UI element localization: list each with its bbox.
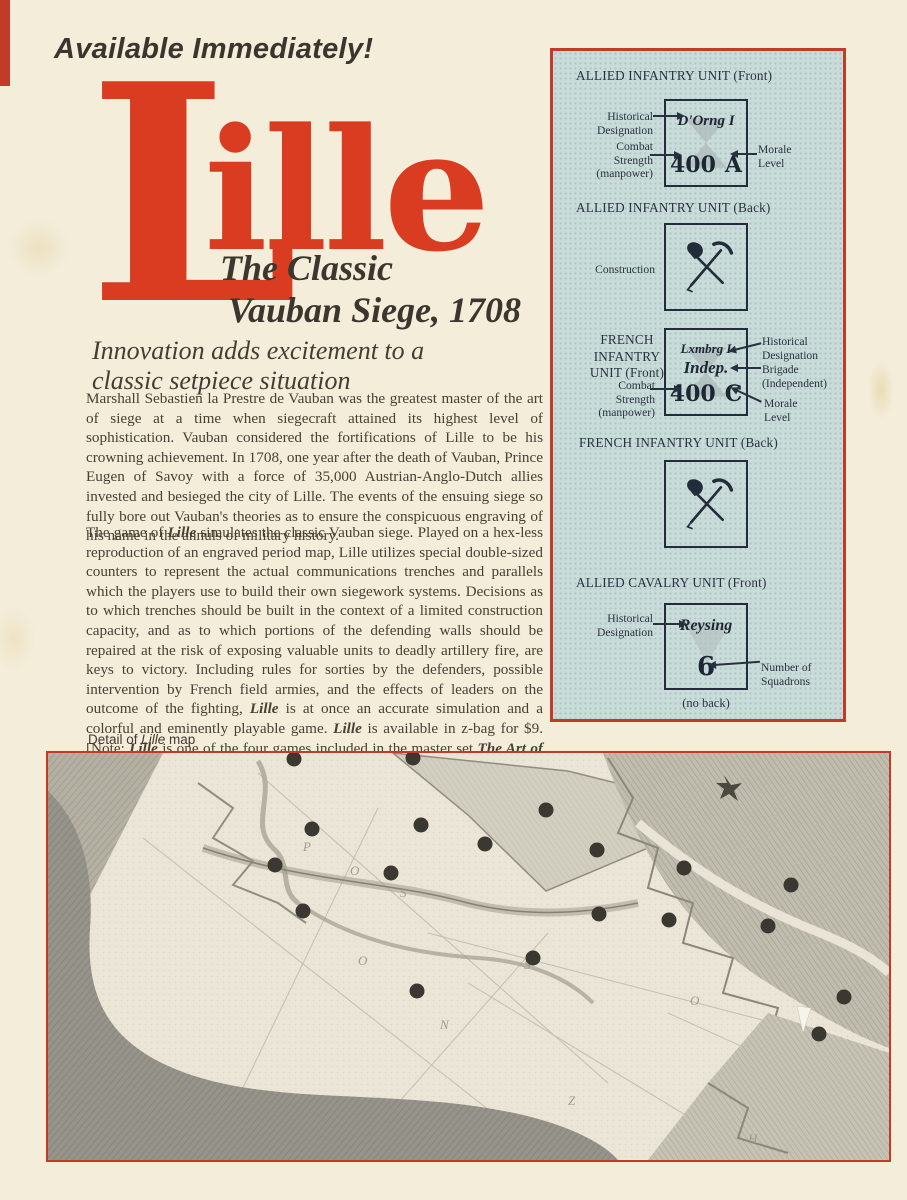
label-brigade: Brigade (Independent) <box>762 363 827 390</box>
siege-unit-dot <box>268 858 283 873</box>
arrow-historical-designation <box>653 115 679 117</box>
siege-unit-dot <box>305 822 320 837</box>
siege-unit-dot <box>761 919 776 934</box>
siege-unit-dot <box>812 1027 827 1042</box>
label-construction: Construction <box>561 263 655 277</box>
arrow-morale-level <box>736 153 757 155</box>
siege-unit-dot <box>539 803 554 818</box>
counter-french-infantry-front: Lxmbrg I Indep. 400C <box>664 328 748 416</box>
label-morale-level: Morale Level <box>758 143 791 170</box>
logo-subtitle-line1: The Classic <box>220 248 521 290</box>
siege-unit-dot <box>677 861 692 876</box>
label-combat-strength: Combat Strength (manpower) <box>557 140 653 181</box>
counter-diagram-sidebar: ALLIED INFANTRY UNIT (Front) D'Orng I 40… <box>550 48 846 722</box>
crossed-shovel-pick-icon <box>678 239 734 295</box>
section-heading-french-infantry-back: FRENCH INFANTRY UNIT (Back) <box>579 435 778 451</box>
intro-heading: Innovation adds excitement to a classic … <box>92 336 424 397</box>
map-letter: P <box>302 839 311 854</box>
crossed-shovel-pick-icon <box>678 476 734 532</box>
paper-stain <box>8 218 70 278</box>
siege-unit-dot <box>784 878 799 893</box>
label-number-of-squadrons: Number of Squadrons <box>761 661 812 688</box>
no-back-note: (no back) <box>664 696 748 711</box>
map-letter: H <box>747 1131 758 1146</box>
logo-subtitle-line2: Vauban Siege, 1708 <box>228 290 521 332</box>
arrow-historical-designation <box>653 623 681 625</box>
label-historical-designation: Historical Designation <box>557 110 653 137</box>
paper-stain <box>0 606 36 672</box>
counter-allied-cavalry-front: Reysing 6 <box>664 603 748 690</box>
map-letter: O <box>690 993 700 1008</box>
paper-stain <box>868 360 894 420</box>
siege-unit-dot <box>478 837 493 852</box>
counter-designation: Reysing <box>666 617 746 635</box>
section-heading-allied-infantry-front: ALLIED INFANTRY UNIT (Front) <box>576 68 772 84</box>
siege-map-detail: POSONSZOH <box>46 751 891 1162</box>
arrow-combat-strength <box>650 154 676 156</box>
label-historical-designation: Historical Designation <box>557 612 653 639</box>
page-edge-red-strip <box>0 0 10 86</box>
section-heading-allied-cavalry-front: ALLIED CAVALRY UNIT (Front) <box>576 575 767 591</box>
siege-unit-dot <box>526 951 541 966</box>
map-letter: S <box>400 885 407 900</box>
counter-french-infantry-back <box>664 460 748 548</box>
magazine-ad-page: Available Immediately! L ille The Classi… <box>0 0 907 1200</box>
siege-unit-dot <box>662 913 677 928</box>
label-historical-designation: Historical Designation <box>762 335 818 362</box>
siege-map-svg: POSONSZOH <box>48 753 889 1160</box>
siege-unit-dot <box>296 904 311 919</box>
logo-subtitle: The Classic Vauban Siege, 1708 <box>220 248 521 332</box>
siege-unit-dot <box>414 818 429 833</box>
arrow-brigade <box>736 367 761 369</box>
section-heading-french-infantry-front: FRENCH INFANTRY UNIT (Front) <box>579 332 675 382</box>
siege-unit-dot <box>592 907 607 922</box>
map-caption: Detail of Lille map <box>88 732 195 747</box>
siege-unit-dot <box>384 866 399 881</box>
map-letter: O <box>350 863 360 878</box>
section-heading-allied-infantry-back: ALLIED INFANTRY UNIT (Back) <box>576 200 771 216</box>
map-letter: N <box>439 1017 450 1032</box>
counter-allied-infantry-back <box>664 223 748 311</box>
siege-unit-dot <box>590 843 605 858</box>
map-letter: Z <box>568 1093 576 1108</box>
siege-unit-dot <box>837 990 852 1005</box>
map-letter: O <box>358 953 368 968</box>
arrow-combat-strength <box>650 388 676 390</box>
siege-unit-dot <box>410 984 425 999</box>
label-morale-level: Morale Level <box>764 397 797 424</box>
squadron-count-value: 6 <box>666 652 746 682</box>
label-combat-strength: Combat Strength (manpower) <box>559 379 655 420</box>
